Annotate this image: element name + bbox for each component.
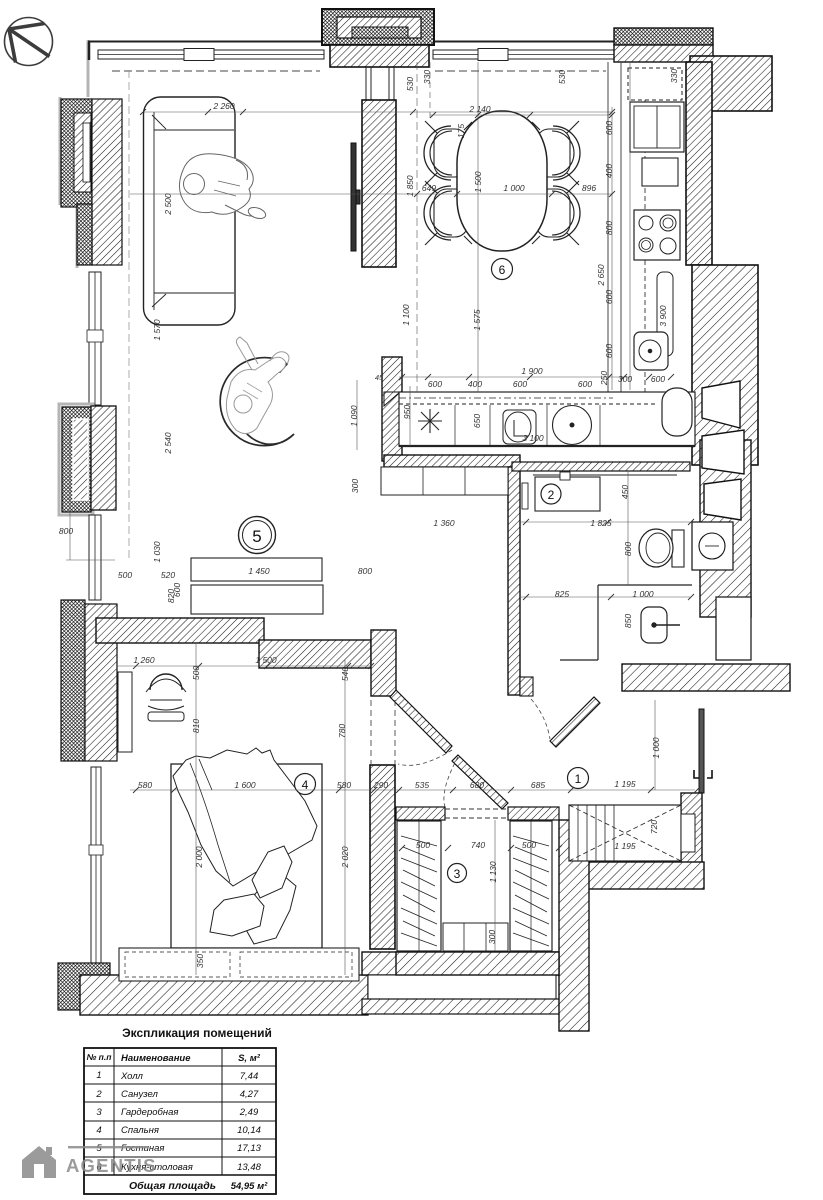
svg-text:500: 500 (118, 570, 132, 580)
svg-text:6: 6 (499, 263, 506, 277)
svg-text:1: 1 (575, 772, 582, 786)
svg-text:896: 896 (582, 183, 596, 193)
svg-text:1 575: 1 575 (472, 309, 482, 331)
svg-text:2 020: 2 020 (340, 846, 350, 869)
svg-text:3 100: 3 100 (522, 433, 544, 443)
svg-text:5: 5 (252, 527, 261, 546)
svg-text:Гардеробная: Гардеробная (121, 1107, 178, 1118)
svg-text:540: 540 (340, 667, 350, 681)
svg-text:7,44: 7,44 (240, 1071, 259, 1082)
svg-text:330: 330 (669, 69, 679, 83)
svg-text:2 140: 2 140 (468, 104, 491, 114)
svg-text:1 450: 1 450 (248, 566, 270, 576)
svg-text:45: 45 (375, 373, 384, 382)
svg-text:10,14: 10,14 (237, 1125, 261, 1136)
svg-text:2: 2 (95, 1089, 102, 1100)
svg-text:3: 3 (96, 1107, 102, 1118)
svg-text:2,49: 2,49 (239, 1107, 259, 1118)
svg-text:720: 720 (649, 820, 659, 834)
svg-text:600: 600 (428, 379, 442, 389)
svg-text:3: 3 (454, 867, 461, 881)
svg-text:530: 530 (557, 70, 567, 84)
svg-text:Холл: Холл (120, 1071, 144, 1082)
svg-text:13,48: 13,48 (237, 1162, 261, 1173)
svg-text:1 195: 1 195 (614, 841, 636, 851)
svg-text:1 000: 1 000 (503, 183, 525, 193)
svg-text:Экспликация помещений: Экспликация помещений (122, 1026, 272, 1040)
svg-text:54,95 м²: 54,95 м² (231, 1181, 268, 1192)
svg-text:400: 400 (604, 164, 614, 178)
svg-text:1 900: 1 900 (521, 366, 543, 376)
svg-text:2: 2 (548, 488, 555, 502)
svg-text:290: 290 (373, 780, 388, 790)
svg-text:780: 780 (337, 724, 347, 738)
svg-text:600: 600 (604, 290, 614, 304)
svg-text:1 000: 1 000 (651, 737, 661, 759)
svg-text:3 900: 3 900 (658, 305, 668, 327)
svg-text:685: 685 (531, 780, 545, 790)
svg-text:1 500: 1 500 (255, 655, 277, 665)
svg-text:800: 800 (358, 566, 372, 576)
svg-text:Гостиная: Гостиная (121, 1143, 164, 1154)
svg-text:810: 810 (191, 719, 201, 733)
svg-text:№ п.п: № п.п (87, 1052, 113, 1062)
svg-text:2 540: 2 540 (163, 432, 173, 455)
svg-text:S, м²: S, м² (238, 1053, 261, 1064)
svg-text:1 130: 1 130 (488, 861, 498, 883)
svg-text:1 850: 1 850 (405, 175, 415, 197)
svg-text:400: 400 (468, 379, 482, 389)
svg-text:600: 600 (604, 344, 614, 358)
svg-text:5: 5 (96, 1143, 102, 1154)
svg-text:500: 500 (522, 840, 536, 850)
svg-text:1 030: 1 030 (152, 541, 162, 563)
svg-text:Спальня: Спальня (121, 1125, 159, 1136)
svg-text:500: 500 (416, 840, 430, 850)
svg-text:600: 600 (604, 121, 614, 135)
svg-text:530: 530 (405, 77, 415, 91)
svg-text:1 090: 1 090 (349, 405, 359, 427)
svg-text:600: 600 (651, 374, 665, 384)
svg-text:580: 580 (337, 780, 351, 790)
svg-text:300: 300 (618, 374, 632, 384)
svg-text:1 360: 1 360 (433, 518, 455, 528)
svg-text:300: 300 (487, 930, 497, 944)
svg-text:1 100: 1 100 (401, 304, 411, 326)
svg-text:600: 600 (578, 379, 592, 389)
svg-text:2 500: 2 500 (163, 193, 173, 216)
svg-text:Наименование: Наименование (121, 1053, 191, 1064)
svg-text:1 600: 1 600 (234, 780, 256, 790)
svg-text:1 260: 1 260 (133, 655, 155, 665)
svg-text:740: 740 (471, 840, 485, 850)
svg-text:650: 650 (472, 414, 482, 428)
svg-text:520: 520 (161, 570, 175, 580)
svg-text:649: 649 (422, 183, 436, 193)
svg-text:1 570: 1 570 (152, 319, 162, 341)
svg-text:1 195: 1 195 (614, 779, 636, 789)
svg-text:AGENTIS: AGENTIS (66, 1155, 157, 1176)
svg-text:250: 250 (599, 371, 609, 386)
svg-text:450: 450 (620, 485, 630, 499)
svg-text:330: 330 (422, 70, 432, 84)
svg-text:680: 680 (470, 780, 484, 790)
svg-text:825: 825 (555, 589, 569, 599)
svg-text:580: 580 (138, 780, 152, 790)
svg-text:2 650: 2 650 (596, 264, 606, 287)
svg-text:800: 800 (59, 526, 73, 536)
svg-text:950: 950 (402, 405, 412, 419)
svg-text:17,13: 17,13 (237, 1143, 261, 1154)
svg-text:500: 500 (191, 666, 201, 680)
svg-text:300: 300 (350, 479, 360, 493)
svg-text:800: 800 (604, 221, 614, 235)
svg-text:600: 600 (172, 583, 182, 597)
svg-text:600: 600 (513, 379, 527, 389)
svg-text:4,27: 4,27 (240, 1089, 259, 1100)
svg-text:535: 535 (415, 780, 429, 790)
svg-text:1 000: 1 000 (632, 589, 654, 599)
svg-text:850: 850 (623, 614, 633, 628)
svg-text:Общая площадь: Общая площадь (129, 1180, 216, 1192)
svg-text:4: 4 (96, 1125, 101, 1136)
svg-text:2 260: 2 260 (212, 101, 235, 111)
svg-text:1 825: 1 825 (590, 518, 612, 528)
svg-text:1 500: 1 500 (473, 171, 483, 193)
svg-text:Санузел: Санузел (121, 1089, 159, 1100)
svg-text:175: 175 (456, 124, 466, 138)
svg-text:800: 800 (623, 542, 633, 556)
svg-text:350: 350 (195, 954, 205, 968)
svg-text:1: 1 (96, 1070, 101, 1081)
svg-text:2 000: 2 000 (194, 846, 204, 869)
